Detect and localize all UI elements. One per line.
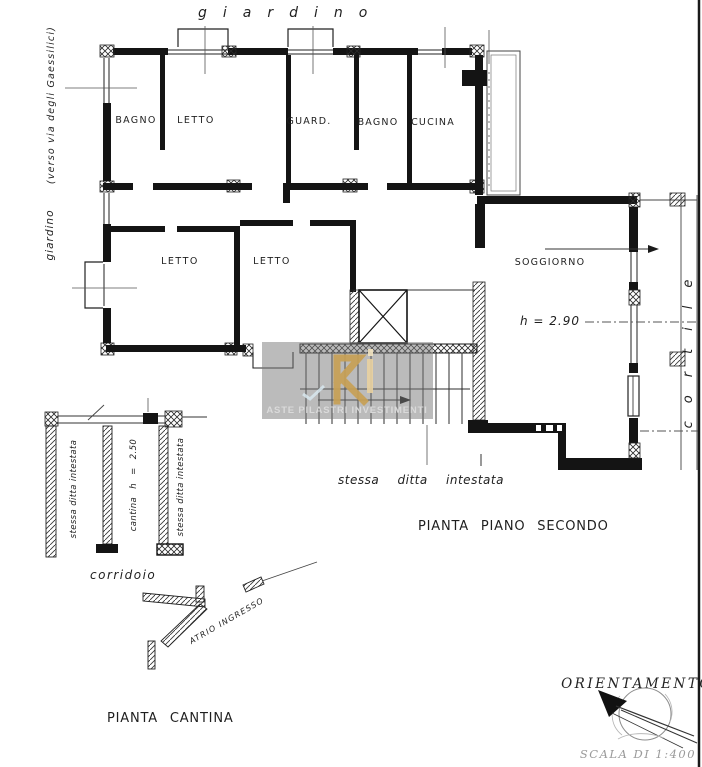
courtyard-right-label: cortile [681,262,696,429]
soggiorno-height-label: h = 2.90 [520,314,580,328]
garden-top-label: giardino [198,5,383,21]
elevator-shaft [350,290,475,343]
second-floor-caption: PIANTA PIANO SECONDO [418,519,609,534]
room-label-bagno-1: BAGNO [115,115,156,126]
cantina-cell-left-label: stessa ditta intestata [69,440,79,539]
floorplan-drawing: giardino (verso via degli Gaessilici) gi… [0,0,702,767]
garden-left-label: giardino [44,210,56,261]
entrance-arrow [648,245,659,253]
cantina-caption: PIANTA CANTINA [107,711,234,726]
compass-sketch-mark [618,734,664,739]
room-label-letto-3: LETTO [253,256,291,267]
corridor-wall [103,183,477,203]
outer-wall-left [85,58,111,343]
room-label-guardaroba: GUARD. [287,116,332,127]
door-sill-marks [536,425,562,431]
room-label-bagno-2: BAGNO [358,117,399,128]
terrace-right-of-cucina [462,51,520,195]
wall-junction-blocks [100,45,484,356]
cantina-cell-right-label: stessa ditta intestata [176,438,186,537]
room-label-cucina: CUCINA [411,117,455,128]
lower-rooms-walls [106,220,356,352]
street-left-label: (verso via degli Gaessilici) [46,26,57,184]
courtyard-edge [545,193,699,470]
scale-label: SCALA DI 1:400 [580,747,696,761]
handwritten-note: stessa ditta intestata [338,473,504,487]
watermark: ASTE PILASTRI INVESTIMENTI [262,342,433,419]
room-label-letto-2: LETTO [161,256,199,267]
orientation-title: ORIENTAMENTO [561,676,702,692]
balcony-top-right [288,29,333,47]
outer-wall-top [113,48,472,55]
corridor-label: corridoio [90,568,156,582]
cantina-cell-middle-label: cantina h = 2.50 [129,439,139,532]
watermark-text: ASTE PILASTRI INVESTIMENTI [266,405,427,416]
balcony-top-left [178,29,228,47]
compass-icon [598,688,697,748]
soggiorno-walls [468,193,642,470]
orientation-block: ORIENTAMENTO SCALA DI 1:400 [561,676,702,761]
room-label-soggiorno: SOGGIORNO [515,257,586,268]
room-label-letto-1: LETTO [177,115,215,126]
door-swing [88,405,104,420]
scanned-floorplan-sheet: giardino (verso via degli Gaessilici) gi… [0,0,702,767]
